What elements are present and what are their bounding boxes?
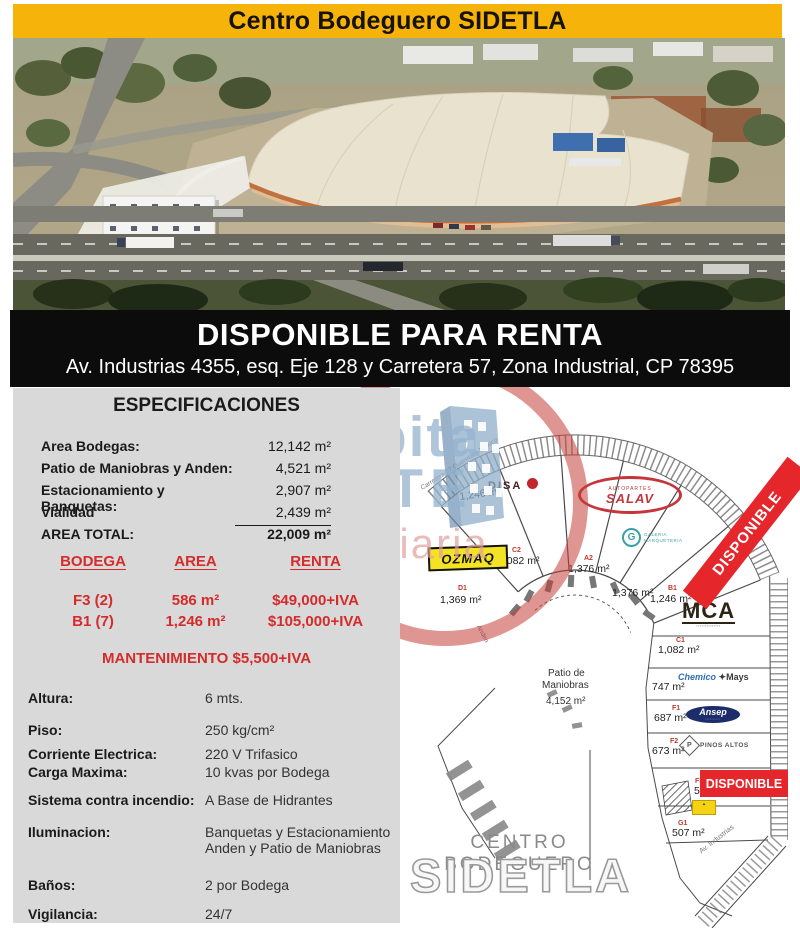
area-value: 22,009 m² <box>235 526 331 548</box>
area-value: 2,439 m² <box>235 504 331 526</box>
detail-row: Vigilancia: 24/7 <box>28 906 393 922</box>
specifications-panel: ESPECIFICACIONES Area Bodegas: 12,142 m²… <box>13 388 400 923</box>
area-label: Area Bodegas: <box>41 438 140 460</box>
available-ribbon-bottom: DISPONIBLE <box>700 770 788 797</box>
rent-table-header: BODEGA AREA RENTA <box>43 553 383 570</box>
area-value: 4,521 m² <box>235 460 331 482</box>
detail-label: Altura: <box>28 690 205 706</box>
area-row: Patio de Maniobras y Anden: 4,521 m² <box>41 460 331 482</box>
patio-label-1: Patio de <box>548 668 585 679</box>
detail-value: 220 V Trifasico <box>205 746 298 762</box>
ansep-subline: ▪▪▪▪▪▪▪▪▪▪ <box>705 717 721 721</box>
ansep-label: Ansep <box>699 708 727 717</box>
detail-value: 10 kvas por Bodega <box>205 764 330 780</box>
ozmaq-label: OZMAQ <box>441 550 495 567</box>
area-row: Vialidad 2,439 m² <box>41 504 331 526</box>
tenant-logo-ozmaq: OZMAQ <box>428 545 509 572</box>
bodega-id: B1 (7) <box>43 613 143 630</box>
bodega-area: 586 m² <box>143 592 248 609</box>
mays-label: ✦Mays <box>719 672 749 682</box>
lot-id: C1 <box>676 637 685 644</box>
detail-row: Carga Maxima: 10 kvas por Bodega <box>28 764 393 780</box>
specifications-title: ESPECIFICACIONES <box>13 395 400 417</box>
chemico-label: Chemico <box>678 672 716 682</box>
pinos-label: PINOS ALTOS <box>700 742 749 749</box>
site-plan: 1,246 m² C2 1,082 m² A2 1,376 m² 1,376 m… <box>400 388 788 928</box>
area-row: Area Bodegas: 12,142 m² <box>41 438 331 460</box>
detail-row: Corriente Electrica: 220 V Trifasico <box>28 746 393 762</box>
detail-row: Iluminacion: Banquetas y Estacionamiento… <box>28 824 393 856</box>
bodega-renta: $49,000+IVA <box>248 592 383 609</box>
lot-area: 1,376 m² <box>612 587 654 599</box>
bodega-renta: $105,000+IVA <box>248 613 383 630</box>
detail-label: Corriente Electrica: <box>28 746 205 762</box>
plan-brand-line2: SIDETLA <box>410 848 630 903</box>
area-label: Estacionamiento y Banquetas: <box>41 482 238 504</box>
detail-label: Baños: <box>28 877 205 893</box>
galeria-line2: MARQUETERIA <box>644 538 683 544</box>
salav-label: SALAV <box>606 492 654 505</box>
area-summary: Area Bodegas: 12,142 m² Patio de Maniobr… <box>41 438 331 548</box>
lot-area: 1,082 m² <box>658 644 700 656</box>
col-bodega: BODEGA <box>60 553 126 570</box>
detail-row: Piso: 250 kg/cm² <box>28 722 393 738</box>
anden-label: Anden <box>475 624 490 644</box>
area-row: Estacionamiento y Banquetas: 2,907 m² <box>41 482 331 504</box>
lot-id: C2 <box>512 547 521 554</box>
tenant-logo-pinos-altos: P PINOS ALTOS <box>682 738 749 753</box>
aerial-photo <box>13 38 785 310</box>
tenant-logo-disa: DISA <box>488 478 538 492</box>
detail-value-2: Anden y Patio de Maniobras <box>205 840 390 856</box>
header-bar: Centro Bodeguero SIDETLA <box>13 4 782 38</box>
col-area: AREA <box>174 553 217 570</box>
lot-area: 687 m² <box>654 712 687 724</box>
detail-label: Sistema contra incendio: <box>28 792 205 808</box>
patio-area: 4,152 m² <box>546 696 586 707</box>
availability-banner: DISPONIBLE PARA RENTA Av. Industrias 435… <box>10 310 790 387</box>
tenant-logo-salav: AUTOPARTES SALAV <box>578 476 682 514</box>
detail-row: Sistema contra incendio: A Base de Hidra… <box>28 792 393 808</box>
detail-label: Vigilancia: <box>28 906 205 922</box>
maintenance-note: MANTENIMIENTO $5,500+IVA <box>13 650 400 667</box>
patio-label-2: Maniobras <box>542 680 589 691</box>
lot-id: B1 <box>668 585 677 592</box>
area-label: Vialidad <box>41 504 94 526</box>
tenant-logo-small: ▲ <box>692 800 716 815</box>
area-label: AREA TOTAL: <box>41 526 134 548</box>
area-label: Patio de Maniobras y Anden: <box>41 460 233 482</box>
detail-row: Altura: 6 mts. <box>28 690 393 706</box>
detail-value: Banquetas y Estacionamiento <box>205 824 390 840</box>
lot-id: D1 <box>458 585 467 592</box>
flyer-page: Centro Bodeguero SIDETLA <box>0 0 800 930</box>
pinos-diamond-icon: P <box>679 735 700 756</box>
rent-row: B1 (7) 1,246 m² $105,000+IVA <box>43 613 383 630</box>
tenant-logo-chemico-mays: Chemico ✦Mays <box>678 672 749 683</box>
banner-title: DISPONIBLE PARA RENTA <box>197 318 603 352</box>
detail-label: Iluminacion: <box>28 824 205 856</box>
tenant-logo-galeria: G GALERIA MARQUETERIA <box>622 528 683 547</box>
detail-label: Piso: <box>28 722 205 738</box>
mca-subline: ▪▪▪▪▪▪▪▪▪▪▪▪▪▪ <box>682 624 735 628</box>
detail-value: 250 kg/cm² <box>205 722 274 738</box>
area-value: 12,142 m² <box>235 438 331 460</box>
lot-id: G1 <box>678 820 687 827</box>
detail-value: 24/7 <box>205 906 232 922</box>
lot-id: F1 <box>672 705 680 712</box>
detail-label: Carga Maxima: <box>28 764 205 780</box>
galeria-g-icon: G <box>622 528 641 547</box>
lot-area: 1,376 m² <box>568 563 610 575</box>
lot-id: A2 <box>584 555 593 562</box>
tenant-logo-ansep: Ansep ▪▪▪▪▪▪▪▪▪▪ <box>686 706 740 723</box>
col-renta: RENTA <box>290 553 341 570</box>
rent-row: F3 (2) 586 m² $49,000+IVA <box>43 592 383 609</box>
banner-address: Av. Industrias 4355, esq. Eje 128 y Carr… <box>66 356 734 379</box>
aerial-photo-illustration <box>13 38 785 310</box>
detail-value: 6 mts. <box>205 690 243 706</box>
detail-value: 2 por Bodega <box>205 877 289 893</box>
detail-row: Baños: 2 por Bodega <box>28 877 393 893</box>
area-value: 2,907 m² <box>238 482 331 504</box>
page-title: Centro Bodeguero SIDETLA <box>228 7 566 36</box>
lot-area: 1,369 m² <box>440 594 482 606</box>
detail-value: A Base de Hidrantes <box>205 792 333 808</box>
disa-circle-icon <box>527 478 538 489</box>
area-total-row: AREA TOTAL: 22,009 m² <box>41 526 331 548</box>
lot-id: F2 <box>670 738 678 745</box>
rent-table: BODEGA AREA RENTA F3 (2) 586 m² $49,000+… <box>43 553 383 630</box>
bodega-area: 1,246 m² <box>143 613 248 630</box>
bodega-id: F3 (2) <box>43 592 143 609</box>
lot-area: 507 m² <box>672 827 705 839</box>
disa-label: DISA <box>488 480 522 492</box>
